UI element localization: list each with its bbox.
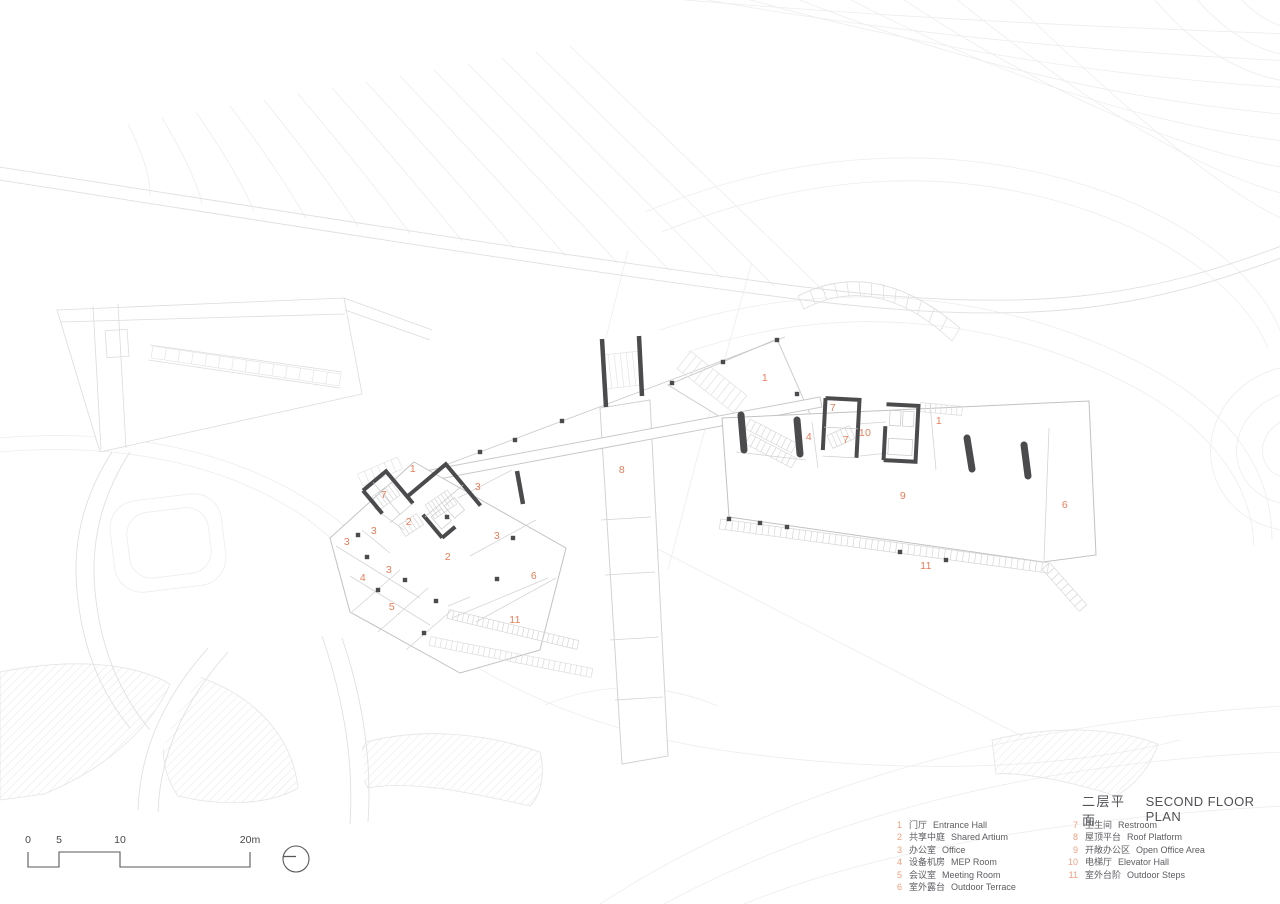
legend-number: 8 <box>1062 831 1078 843</box>
room-number-label: 9 <box>900 490 906 502</box>
legend-number: 5 <box>886 869 902 881</box>
legend-column-2: 7卫生间Restroom8屋顶平台Roof Platform9开敞办公区Open… <box>1062 819 1205 881</box>
east-building-outline <box>722 401 1096 562</box>
legend-label-zh: 会议室 <box>909 869 936 881</box>
room-number-label: 8 <box>619 464 625 476</box>
room-number-label: 1 <box>936 415 942 427</box>
scale-bar: 051020m <box>0 834 320 880</box>
legend-number: 10 <box>1062 856 1078 868</box>
room-number-label: 1 <box>762 372 768 384</box>
legend-number: 6 <box>886 881 902 893</box>
legend-row: 10电梯厅Elevator Hall <box>1062 856 1205 868</box>
legend-column-1: 1门厅Entrance Hall2共享中庭Shared Artium3办公室Of… <box>886 819 1016 893</box>
room-number-label: 3 <box>371 525 377 537</box>
north-arrow-icon <box>279 842 313 876</box>
legend-row: 2共享中庭Shared Artium <box>886 831 1016 843</box>
legend-label-zh: 共享中庭 <box>909 831 945 843</box>
legend-label-zh: 电梯厅 <box>1085 856 1112 868</box>
legend-label-zh: 室外露台 <box>909 881 945 893</box>
legend-label-en: Outdoor Steps <box>1127 869 1185 881</box>
legend-label-en: Entrance Hall <box>933 819 987 831</box>
roof-platform-walkway <box>600 400 668 764</box>
legend-label-zh: 办公室 <box>909 844 936 856</box>
legend-row: 7卫生间Restroom <box>1062 819 1205 831</box>
room-number-label: 2 <box>406 516 412 528</box>
existing-building-outline <box>57 298 432 452</box>
room-number-label: 11 <box>920 560 932 572</box>
room-number-label: 3 <box>494 530 500 542</box>
legend-row: 11室外台阶Outdoor Steps <box>1062 869 1205 881</box>
legend-label-en: Outdoor Terrace <box>951 881 1016 893</box>
legend-label-zh: 开敞办公区 <box>1085 844 1130 856</box>
legend-label-zh: 室外台阶 <box>1085 869 1121 881</box>
legend-row: 5会议室Meeting Room <box>886 869 1016 881</box>
site-plan-drawing <box>0 0 1280 904</box>
legend-row: 1门厅Entrance Hall <box>886 819 1016 831</box>
legend-label-zh: 卫生间 <box>1085 819 1112 831</box>
legend-label-zh: 门厅 <box>909 819 927 831</box>
room-number-label: 2 <box>445 551 451 563</box>
legend-row: 4设备机房MEP Room <box>886 856 1016 868</box>
legend-label-en: Elevator Hall <box>1118 856 1169 868</box>
legend-number: 4 <box>886 856 902 868</box>
legend-label-zh: 设备机房 <box>909 856 945 868</box>
room-number-label: 3 <box>475 481 481 493</box>
legend-label-zh: 屋顶平台 <box>1085 831 1121 843</box>
room-number-label: 4 <box>360 572 366 584</box>
legend-label-en: Office <box>942 844 965 856</box>
legend-label-en: Restroom <box>1118 819 1157 831</box>
legend-number: 1 <box>886 819 902 831</box>
legend-row: 9开敞办公区Open Office Area <box>1062 844 1205 856</box>
room-number-label: 3 <box>344 536 350 548</box>
legend-number: 7 <box>1062 819 1078 831</box>
room-number-label: 1 <box>410 463 416 475</box>
room-number-label: 7 <box>381 489 387 501</box>
room-number-label: 6 <box>531 570 537 582</box>
legend-label-en: Roof Platform <box>1127 831 1182 843</box>
legend-label-en: MEP Room <box>951 856 997 868</box>
landscape-hatch-areas <box>0 664 1158 806</box>
floor-plan-sheet: 17323332345611817471019611 二层平面 SECOND F… <box>0 0 1280 904</box>
legend-label-en: Open Office Area <box>1136 844 1205 856</box>
room-number-label: 6 <box>1062 499 1068 511</box>
room-number-label: 4 <box>806 431 812 443</box>
room-number-label: 10 <box>859 427 871 439</box>
room-number-label: 7 <box>843 434 849 446</box>
legend-label-en: Shared Artium <box>951 831 1008 843</box>
legend-row: 6室外露台Outdoor Terrace <box>886 881 1016 893</box>
legend-number: 11 <box>1062 869 1078 881</box>
room-number-label: 7 <box>830 402 836 414</box>
room-number-label: 11 <box>509 614 521 626</box>
room-number-label: 5 <box>389 601 395 613</box>
scale-bar-line <box>28 852 250 867</box>
legend-number: 2 <box>886 831 902 843</box>
legend-row: 8屋顶平台Roof Platform <box>1062 831 1205 843</box>
room-number-label: 3 <box>386 564 392 576</box>
legend-label-en: Meeting Room <box>942 869 1001 881</box>
legend-number: 3 <box>886 844 902 856</box>
legend-row: 3办公室Office <box>886 844 1016 856</box>
legend-number: 9 <box>1062 844 1078 856</box>
